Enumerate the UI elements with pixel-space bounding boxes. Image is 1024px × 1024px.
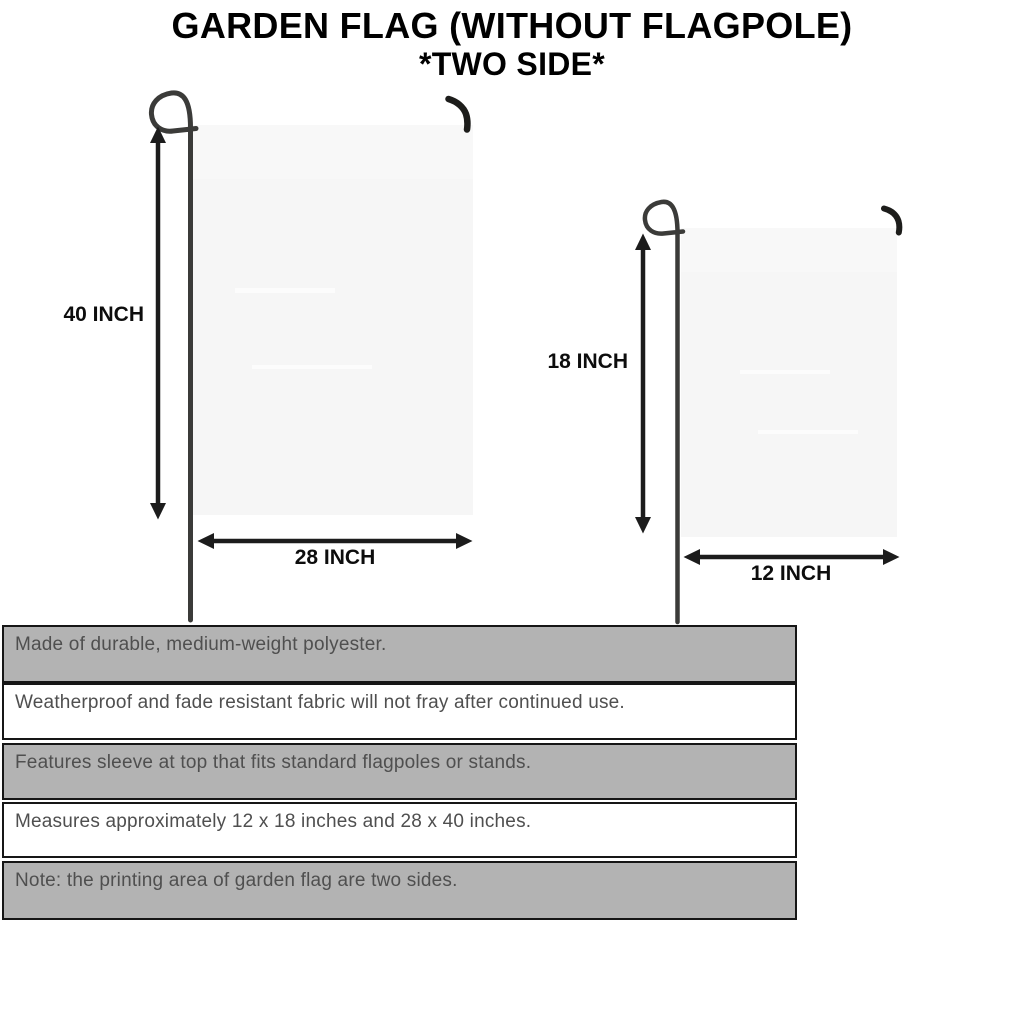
small-flag-diagram xyxy=(635,202,900,622)
small-flag-wrinkle xyxy=(758,430,858,434)
feature-text: Weatherproof and fade resistant fabric w… xyxy=(15,692,625,713)
feature-text: Made of durable, medium-weight polyester… xyxy=(15,634,387,655)
large-flag-fabric xyxy=(193,125,473,515)
features-table: Made of durable, medium-weight polyester… xyxy=(2,625,797,920)
feature-row-polyester: Made of durable, medium-weight polyester… xyxy=(2,625,797,683)
large-flag-height-arrow xyxy=(150,127,166,520)
large-flag-width-label: 28 INCH xyxy=(245,545,425,571)
large-flag-height-label: 40 INCH xyxy=(20,302,144,328)
small-flag-height-arrow xyxy=(635,234,651,534)
large-flag-diagram xyxy=(150,93,473,620)
small-flag-fabric xyxy=(681,228,897,537)
large-flagpole-end-hook xyxy=(449,99,468,130)
large-flag-wrinkle xyxy=(235,288,335,293)
feature-row-weatherproof: Weatherproof and fade resistant fabric w… xyxy=(2,683,797,740)
feature-row-sleeve: Features sleeve at top that fits standar… xyxy=(2,743,797,800)
large-flag-sleeve xyxy=(193,125,473,179)
small-flag-sleeve xyxy=(681,228,897,272)
small-flag-width-label: 12 INCH xyxy=(701,561,881,587)
feature-text: Features sleeve at top that fits standar… xyxy=(15,752,531,773)
feature-row-note: Note: the printing area of garden flag a… xyxy=(2,861,797,920)
small-flag-height-label: 18 INCH xyxy=(508,349,628,375)
garden-flag-size-chart: GARDEN FLAG (WITHOUT FLAGPOLE) *TWO SIDE… xyxy=(0,0,1024,1024)
feature-text: Measures approximately 12 x 18 inches an… xyxy=(15,811,531,832)
small-flag-wrinkle xyxy=(740,370,830,374)
small-flagpole xyxy=(645,202,683,622)
feature-row-measures: Measures approximately 12 x 18 inches an… xyxy=(2,802,797,858)
large-flag-wrinkle xyxy=(252,365,372,369)
feature-text: Note: the printing area of garden flag a… xyxy=(15,870,458,891)
